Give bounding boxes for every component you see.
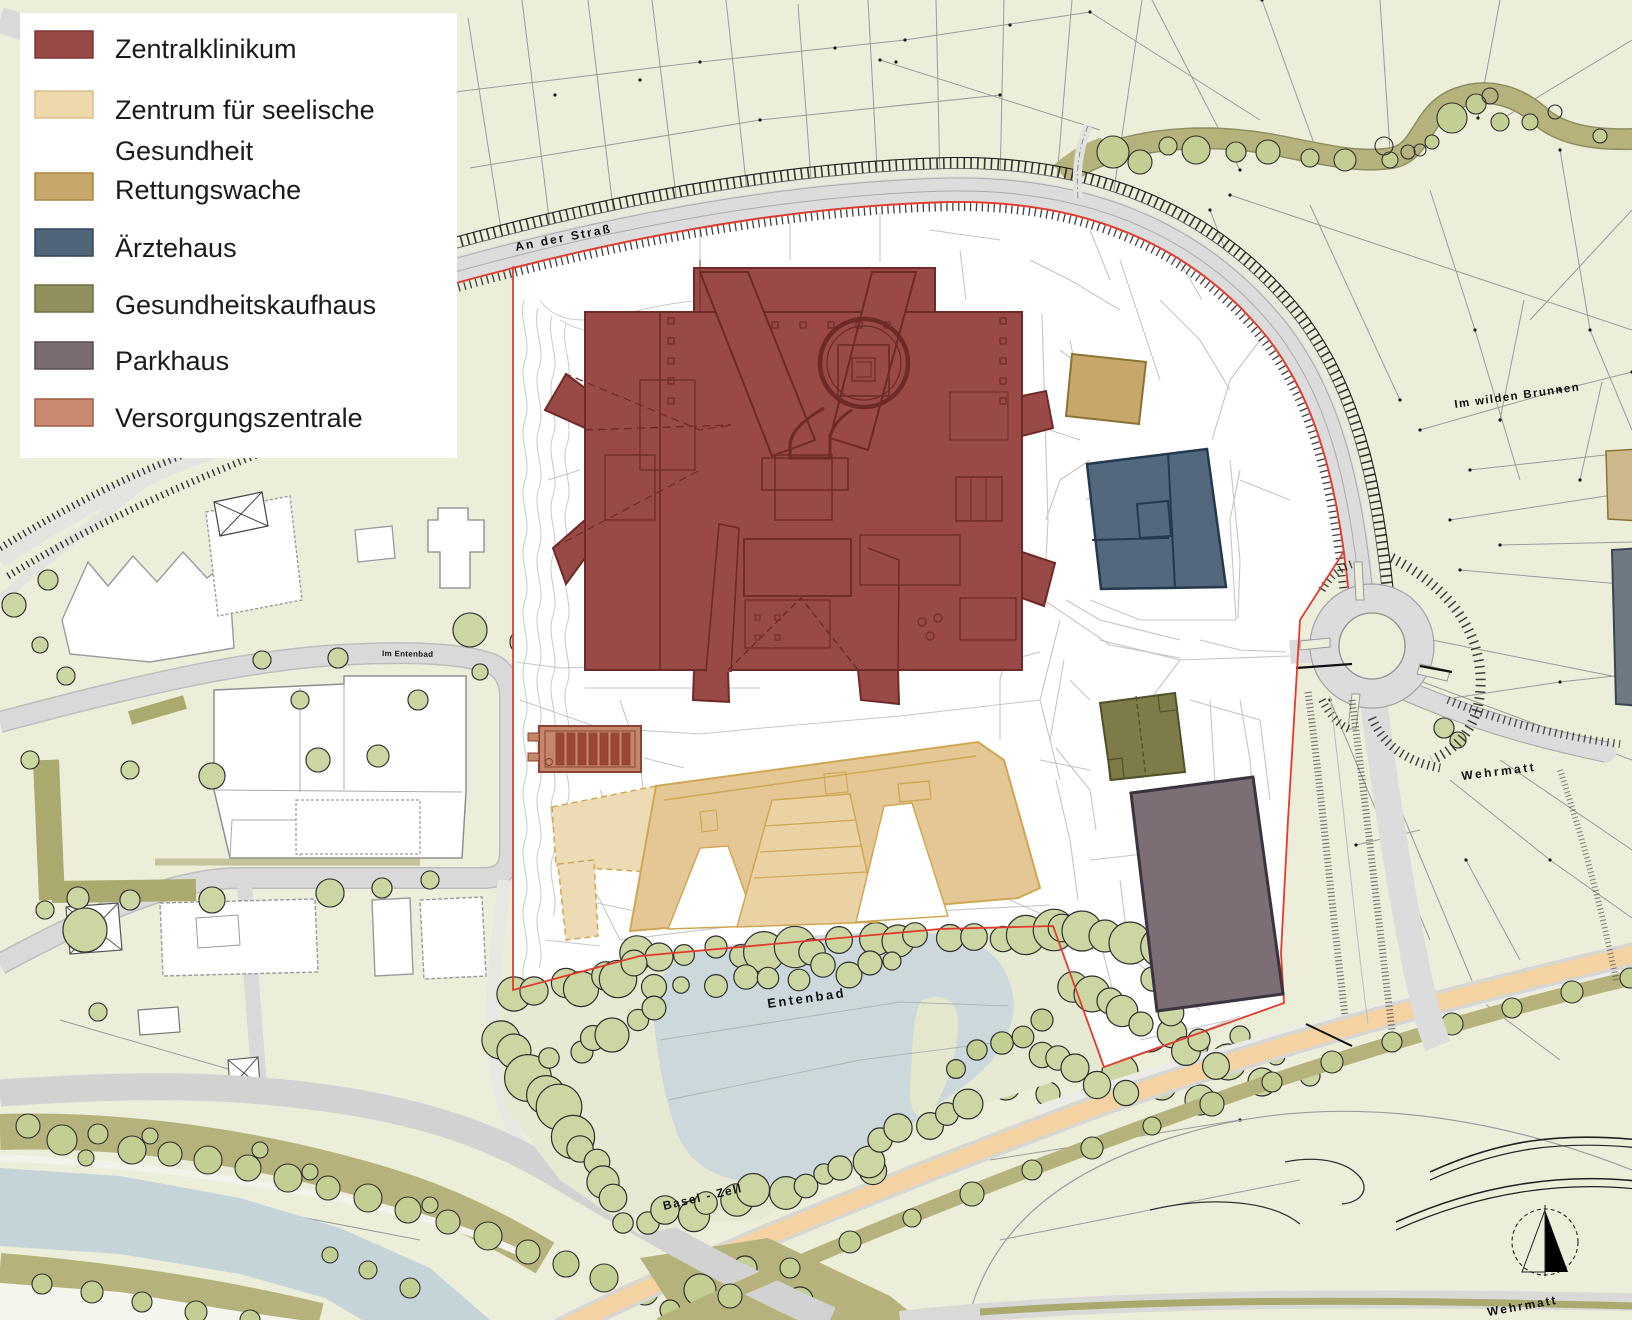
svg-text:Gesundheitskaufhaus: Gesundheitskaufhaus	[115, 290, 376, 320]
svg-text:Versorgungszentrale: Versorgungszentrale	[115, 403, 363, 433]
svg-text:Gesundheit: Gesundheit	[115, 136, 254, 166]
svg-text:Zentrum für seelische: Zentrum für seelische	[115, 95, 375, 125]
svg-text:Rettungswache: Rettungswache	[115, 175, 301, 205]
svg-text:Parkhaus: Parkhaus	[115, 346, 229, 376]
svg-text:Im Entenbad: Im Entenbad	[382, 649, 433, 659]
svg-text:Ärztehaus: Ärztehaus	[115, 233, 237, 263]
svg-text:Zentralklinikum: Zentralklinikum	[115, 34, 297, 64]
